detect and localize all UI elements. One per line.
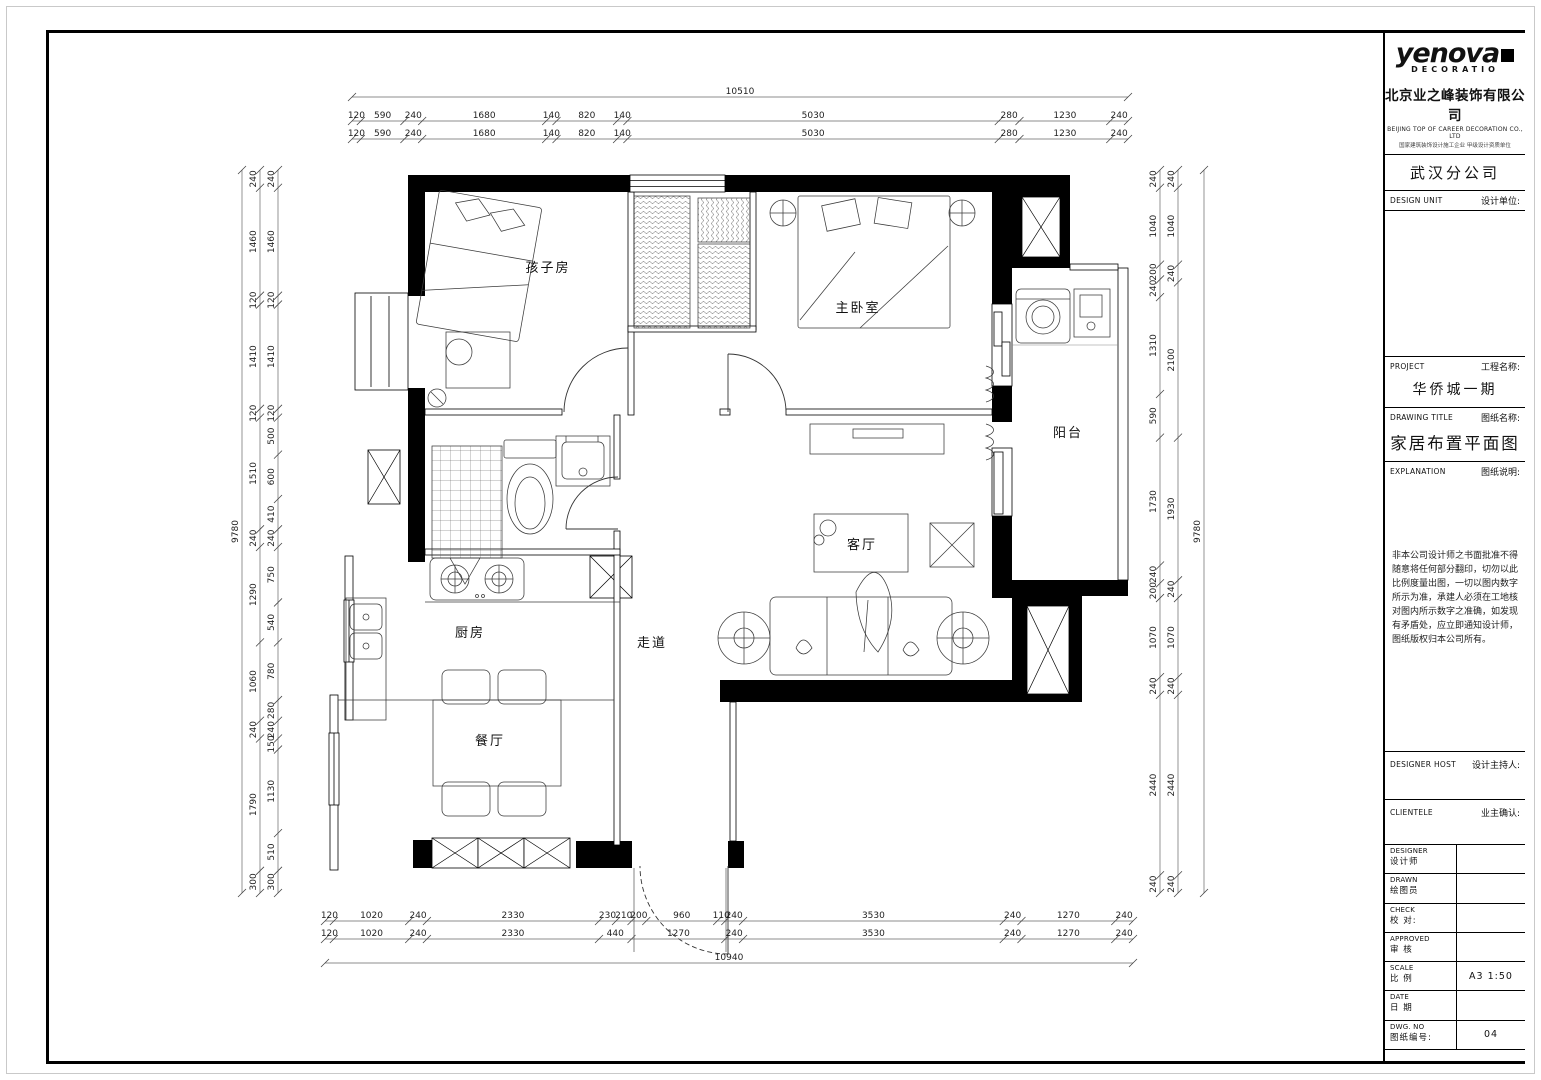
dimension-label: 5030 (802, 111, 825, 121)
dimension-label: 1790 (249, 793, 259, 816)
dimension-label: 120 (348, 129, 365, 139)
dimension-label: 240 (249, 170, 259, 187)
dimension-label: 240 (267, 170, 277, 187)
tv (853, 429, 903, 438)
dimension-label: 280 (1001, 111, 1018, 121)
dimension-label: 120 (321, 929, 338, 939)
dimension-label: 240 (267, 529, 277, 546)
dimension-label: 10510 (726, 87, 755, 97)
row-value (1457, 874, 1525, 902)
dimension-label: 820 (578, 111, 595, 121)
dimension-label: 240 (726, 911, 743, 921)
design-unit-en: DESIGN UNIT (1390, 196, 1443, 205)
dimension-label: 750 (267, 566, 277, 583)
dimension-label: 240 (1167, 875, 1177, 892)
clientele-en: CLIENTELE (1390, 808, 1433, 817)
explanation-cn: 图纸说明: (1481, 465, 1520, 478)
dimension-label: 500 (267, 427, 277, 444)
room-label-dining: 餐厅 (475, 733, 505, 749)
titleblock-row: CHECK校 对: (1385, 904, 1525, 933)
row-label-cn: 比 例 (1390, 972, 1456, 984)
dimension-label: 2440 (1167, 773, 1177, 796)
dimension-label: 230 (599, 911, 616, 921)
dimension-label: 240 (405, 111, 422, 121)
dimension-label: 590 (374, 111, 391, 121)
dimension-label: 120 (249, 404, 259, 421)
dimension-label: 10940 (715, 953, 744, 963)
sofa-leaf-decor (796, 640, 812, 654)
dimension-label: 9780 (231, 520, 241, 543)
row-label-cn: 日 期 (1390, 1001, 1456, 1013)
dimension-label: 120 (267, 404, 277, 421)
clientele-row: CLIENTELE 业主确认: (1385, 800, 1525, 845)
dimension-label: 1730 (1149, 490, 1159, 513)
dimension-label: 240 (1149, 875, 1159, 892)
drawing-title-en: DRAWING TITLE (1390, 413, 1453, 422)
explanation-en: EXPLANATION (1390, 467, 1446, 476)
dimension-label: 200 (1149, 582, 1159, 599)
dimension-label: 9780 (1193, 520, 1203, 543)
dimension-label: 600 (267, 468, 277, 485)
dining-chair (442, 782, 490, 816)
dimension-label: 1070 (1149, 626, 1159, 649)
dimension-label: 1680 (473, 111, 496, 121)
dimension-label: 240 (1149, 279, 1159, 296)
dimension-label: 240 (249, 529, 259, 546)
dimension-label: 240 (1167, 580, 1177, 597)
row-label-en: DATE (1390, 993, 1456, 1001)
dimension-label: 240 (1167, 677, 1177, 694)
dimension-label: 1060 (249, 670, 259, 693)
dimension-label: 1410 (249, 345, 259, 368)
row-label-cn: 绘图员 (1390, 884, 1456, 896)
titleblock-row: DATE日 期 (1385, 991, 1525, 1020)
children-bed (416, 190, 542, 342)
dimension-label: 1270 (1057, 911, 1080, 921)
company-header: yenova DECORATIO 北京业之峰装饰有限公司 BEIJING TOP… (1385, 33, 1525, 155)
drawing-sheet: 孩子房 主卧室 阳台 客厅 走道 厨房 餐厅 10510120590240168… (0, 0, 1541, 1080)
dimension-label: 240 (409, 911, 426, 921)
sofa (770, 597, 952, 675)
pillow (874, 198, 912, 229)
dimension-label: 240 (1149, 566, 1159, 583)
dimension-label: 440 (607, 929, 624, 939)
title-block: yenova DECORATIO 北京业之峰装饰有限公司 BEIJING TOP… (1383, 33, 1525, 1061)
row-label-cn: 校 对: (1390, 914, 1456, 926)
dimension-label: 1040 (1167, 214, 1177, 237)
room-label-living: 客厅 (847, 537, 877, 553)
dimension-label: 1070 (1167, 626, 1177, 649)
row-label-cn: 审 核 (1390, 943, 1456, 955)
dimension-label: 280 (1001, 129, 1018, 139)
titleblock-row: DESIGNER设计师 (1385, 845, 1525, 874)
explanation-text: 非本公司设计师之书面批准不得随意将任何部分翻印，切勿以此比例度量出图，一切以图内… (1385, 478, 1525, 648)
drawing-title-section: DRAWING TITLE 图纸名称: 家居布置平面图 (1385, 408, 1525, 462)
designer-host-en: DESIGNER HOST (1390, 760, 1456, 769)
wardrobe (634, 196, 750, 328)
shower-area (432, 446, 502, 558)
row-label-en: SCALE (1390, 964, 1456, 972)
dimension-label: 3530 (862, 929, 885, 939)
titleblock-row: DRAWN绘图员 (1385, 874, 1525, 903)
room-label-corridor: 走道 (637, 636, 667, 651)
children-desk (446, 332, 510, 388)
dimension-label: 240 (1004, 911, 1021, 921)
children-stool (446, 339, 472, 365)
room-label-balcony: 阳台 (1053, 426, 1083, 441)
dimension-label: 240 (1004, 929, 1021, 939)
dimension-label: 140 (543, 129, 560, 139)
dimension-label: 120 (321, 911, 338, 921)
dimension-label: 150 (267, 735, 277, 752)
dimension-label: 120 (249, 291, 259, 308)
dimension-label: 1460 (249, 230, 259, 253)
dimension-label: 2330 (502, 929, 525, 939)
row-value (1457, 991, 1525, 1019)
dimension-label: 2100 (1167, 348, 1177, 371)
dimension-label: 240 (1167, 170, 1177, 187)
dimension-label: 1130 (267, 780, 277, 803)
row-value (1457, 933, 1525, 961)
titleblock-row: SCALE比 例A3 1:50 (1385, 962, 1525, 991)
dining-chair (498, 782, 546, 816)
row-label-en: APPROVED (1390, 935, 1456, 943)
dimension-label: 510 (267, 843, 277, 860)
dimension-label: 200 (1149, 263, 1159, 280)
balcony-door-panel (994, 452, 1003, 514)
signature-rows: DESIGNER设计师DRAWN绘图员CHECK校 对:APPROVED审 核S… (1385, 845, 1525, 1050)
row-label-en: DESIGNER (1390, 847, 1456, 855)
dimension-label: 1230 (1053, 111, 1076, 121)
project-section: PROJECT 工程名称: 华侨城一期 (1385, 357, 1525, 408)
room-label-master: 主卧室 (835, 300, 880, 316)
design-unit-field (1385, 211, 1525, 357)
dining-chair (442, 670, 490, 704)
logo-square-icon (1501, 49, 1514, 62)
dimension-label: 1680 (473, 129, 496, 139)
dimension-label: 240 (1116, 911, 1133, 921)
row-value (1457, 904, 1525, 932)
dimension-label: 200 (630, 911, 647, 921)
dimension-label: 1020 (360, 929, 383, 939)
titleblock-row: DWG. NO图纸编号:04 (1385, 1021, 1525, 1050)
dimension-label: 1230 (1053, 129, 1076, 139)
drawing-title-value: 家居布置平面图 (1385, 430, 1525, 454)
pillow (822, 199, 861, 232)
dimension-label: 120 (267, 291, 277, 308)
dimension-label: 590 (374, 129, 391, 139)
washing-machine (1016, 289, 1070, 343)
company-name-cn: 北京业之峰装饰有限公司 (1385, 84, 1525, 124)
row-value: A3 1:50 (1457, 962, 1525, 990)
clientele-cn: 业主确认: (1481, 806, 1520, 819)
dimension-label: 590 (1149, 407, 1159, 424)
sofa-leaf-decor (903, 642, 919, 656)
dimension-label: 1460 (267, 230, 277, 253)
titleblock-row: APPROVED审 核 (1385, 933, 1525, 962)
dimension-label: 140 (614, 111, 631, 121)
dimension-label: 140 (543, 111, 560, 121)
dimension-label: 1040 (1149, 214, 1159, 237)
kitchen-sink (350, 633, 382, 659)
dimension-label: 1510 (249, 462, 259, 485)
dimension-label: 820 (578, 129, 595, 139)
tv-cabinet (810, 424, 944, 454)
dimension-label: 1020 (360, 911, 383, 921)
dimension-label: 240 (1111, 129, 1128, 139)
dimension-label: 240 (1149, 677, 1159, 694)
yenova-logo: yenova (1385, 41, 1525, 67)
dimension-label: 540 (267, 614, 277, 631)
dining-chair (498, 670, 546, 704)
dimension-label: 300 (249, 873, 259, 890)
room-label-children: 孩子房 (525, 260, 570, 276)
dimension-label: 240 (409, 929, 426, 939)
branch-name: 武汉分公司 (1385, 155, 1525, 191)
plant-leaf (856, 572, 892, 652)
dimension-label: 5030 (802, 129, 825, 139)
row-value (1457, 845, 1525, 873)
dimension-label: 140 (614, 129, 631, 139)
project-cn: 工程名称: (1481, 360, 1520, 373)
dimension-label: 240 (726, 929, 743, 939)
designer-host-cn: 设计主持人: (1472, 758, 1520, 771)
project-en: PROJECT (1390, 362, 1425, 371)
row-value: 04 (1457, 1021, 1525, 1049)
dimension-label: 240 (1116, 929, 1133, 939)
dimension-label: 2440 (1149, 773, 1159, 796)
row-label-en: CHECK (1390, 906, 1456, 914)
shower-drain (450, 558, 480, 584)
dimension-label: 280 (267, 702, 277, 719)
row-label-cn: 设计师 (1390, 855, 1456, 867)
designer-host-row: DESIGNER HOST 设计主持人: (1385, 752, 1525, 800)
project-value: 华侨城一期 (1385, 379, 1525, 399)
row-label-cn: 图纸编号: (1390, 1031, 1456, 1043)
dimension-label: 960 (673, 911, 690, 921)
dimension-label: 780 (267, 662, 277, 679)
toilet-tank (504, 440, 556, 458)
dimension-label: 240 (1167, 265, 1177, 282)
dimension-label: 300 (267, 873, 277, 890)
dimension-label: 1270 (667, 929, 690, 939)
dimension-label: 240 (405, 129, 422, 139)
explanation-section: EXPLANATION 图纸说明: 非本公司设计师之书面批准不得随意将任何部分翻… (1385, 462, 1525, 752)
dimension-label: 410 (267, 505, 277, 522)
floor-plan: 孩子房 主卧室 阳台 客厅 走道 厨房 餐厅 10510120590240168… (0, 0, 1541, 1080)
dimension-label: 240 (1149, 170, 1159, 187)
dimension-label: 1290 (249, 583, 259, 606)
design-unit-cn: 设计单位: (1481, 194, 1520, 207)
kitchen-sink (350, 604, 382, 630)
dimension-label: 240 (1111, 111, 1128, 121)
room-label-kitchen: 厨房 (455, 625, 485, 641)
dimension-label: 1930 (1167, 497, 1177, 520)
dimension-label: 1310 (1149, 334, 1159, 357)
row-label-en: DRAWN (1390, 876, 1456, 884)
dimension-label: 240 (249, 721, 259, 738)
toilet (507, 464, 553, 534)
dimension-label: 3530 (862, 911, 885, 921)
company-name-en: BEIJING TOP OF CAREER DECORATION CO., LT… (1385, 126, 1525, 140)
design-unit-row: DESIGN UNIT 设计单位: (1385, 191, 1525, 211)
dimension-label: 2330 (502, 911, 525, 921)
company-tagline: 国家建筑装饰设计施工企业 甲级设计资质单位 (1385, 141, 1525, 149)
dimension-label: 1410 (267, 345, 277, 368)
drawing-title-cn: 图纸名称: (1481, 411, 1520, 424)
dimension-label: 1270 (1057, 929, 1080, 939)
row-label-en: DWG. NO (1390, 1023, 1456, 1031)
dimension-label: 120 (348, 111, 365, 121)
walls (408, 175, 1128, 868)
